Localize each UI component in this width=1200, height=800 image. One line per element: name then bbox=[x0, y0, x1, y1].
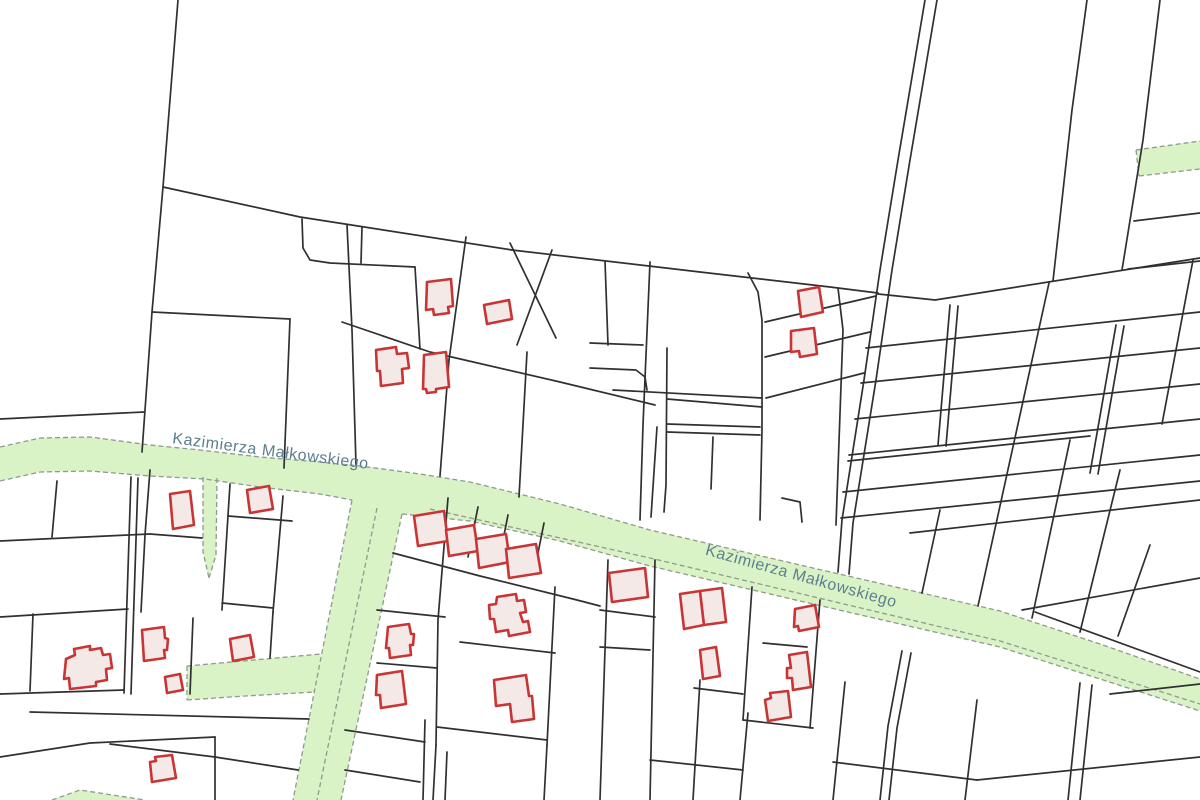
building-outline[interactable] bbox=[426, 279, 453, 315]
building-outline[interactable] bbox=[170, 491, 194, 529]
building-outline[interactable] bbox=[798, 287, 823, 317]
building-outline[interactable] bbox=[142, 627, 168, 661]
building-outline[interactable] bbox=[386, 624, 414, 658]
building-outline[interactable] bbox=[700, 588, 726, 625]
building-outline[interactable] bbox=[506, 544, 541, 578]
building-outline[interactable] bbox=[700, 647, 720, 679]
building-outline[interactable] bbox=[484, 300, 512, 324]
building-outline[interactable] bbox=[423, 352, 449, 393]
building-outline[interactable] bbox=[230, 635, 254, 661]
map-viewport[interactable]: Kazimierza MałkowskiegoKazimierza Małkow… bbox=[0, 0, 1200, 800]
building-outline[interactable] bbox=[794, 605, 819, 631]
building-outline[interactable] bbox=[247, 486, 273, 513]
cadastral-map-canvas[interactable]: Kazimierza MałkowskiegoKazimierza Małkow… bbox=[0, 0, 1200, 800]
building-outline[interactable] bbox=[376, 671, 406, 708]
parcel-boundary-line bbox=[361, 227, 362, 263]
building-outline[interactable] bbox=[791, 328, 817, 357]
building-outline[interactable] bbox=[446, 525, 478, 556]
building-outline[interactable] bbox=[165, 674, 183, 693]
building-outline[interactable] bbox=[376, 347, 409, 386]
building-outline[interactable] bbox=[414, 511, 448, 546]
building-outline[interactable] bbox=[609, 568, 648, 602]
